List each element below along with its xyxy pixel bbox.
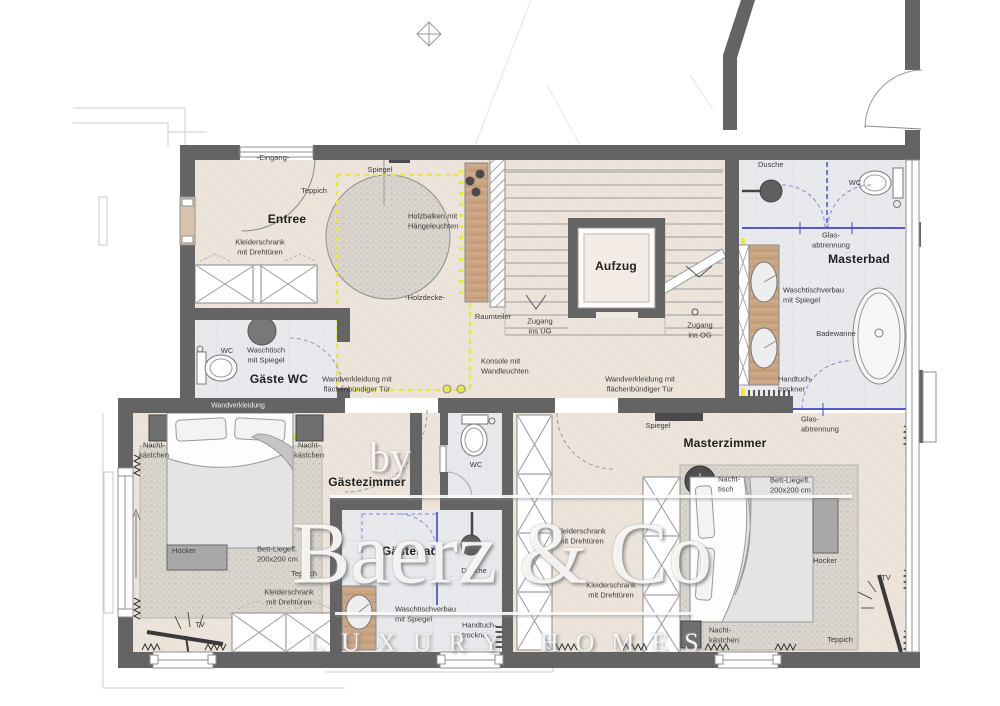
watermark-brand: Baerz & Co bbox=[292, 504, 712, 605]
label-zugang-ug: Zugang ins UG bbox=[527, 316, 552, 336]
label-handtuchtrockner-mb: Handtuch- trockner bbox=[778, 374, 813, 394]
label-wandverkleidung-tuer-right: Wandverkleidung mit flächenbündiger Tür bbox=[605, 374, 675, 394]
label-glas-mb-unten: Glas- abtrennung bbox=[801, 414, 839, 434]
label-wc-center: WC bbox=[470, 460, 483, 470]
watermark-rule-bottom bbox=[335, 612, 692, 615]
label-tv-gz: TV bbox=[195, 620, 205, 630]
room-aufzug: Aufzug bbox=[595, 259, 637, 275]
round-rug bbox=[326, 175, 450, 299]
nightstand bbox=[296, 415, 323, 441]
room-divider bbox=[490, 158, 505, 307]
label-nachtkaestchen-gz-l: Nacht- kästchen bbox=[139, 440, 169, 460]
label-tv-mz: TV bbox=[881, 573, 891, 583]
label-wandverkleidung: Wandverkleidung bbox=[211, 401, 265, 410]
watermark-by: by bbox=[369, 434, 411, 482]
label-hocker-gz: Hocker bbox=[172, 546, 196, 556]
survey-diamond-icon bbox=[417, 22, 441, 46]
label-wandverkleidung-tuer-left: Wandverkleidung mit flächenbündiger Tür bbox=[322, 374, 392, 394]
label-raumteiler: Raumteiler bbox=[475, 312, 511, 322]
label-spiegel-entree: Spiegel bbox=[367, 165, 392, 175]
label-bett-mz: Bett-Liegefl. 200x200 cm bbox=[770, 475, 811, 495]
wall-mirrors bbox=[655, 413, 703, 421]
label-wc-gaeste: WC bbox=[221, 346, 234, 356]
label-teppich-entree: Teppich bbox=[301, 186, 327, 196]
label-zugang-og: Zugang ins OG bbox=[687, 320, 712, 340]
entree-wardrobe bbox=[195, 265, 317, 303]
watermark-rule-top bbox=[330, 495, 852, 498]
exterior-door bbox=[865, 70, 922, 129]
label-badewanne: Badewanne bbox=[816, 329, 856, 339]
master-mirror bbox=[655, 413, 703, 421]
shower-head bbox=[760, 180, 782, 202]
label-hocker-mz: Hocker bbox=[813, 556, 837, 566]
room-gaeste-wc: Gäste WC bbox=[250, 372, 308, 388]
label-holzdecke: -Holzdecke- bbox=[405, 293, 445, 303]
label-nachtkaestchen-gz-r: Nacht- kästchen bbox=[294, 440, 324, 460]
label-glas-mb-oben: Glas- abtrennung bbox=[812, 230, 850, 250]
room-entree: Entree bbox=[268, 212, 307, 228]
room-masterzimmer: Masterzimmer bbox=[683, 436, 766, 452]
label-dusche-mb: Dusche bbox=[758, 160, 783, 170]
stool bbox=[813, 498, 838, 553]
label-teppich-mz: Teppich bbox=[827, 635, 853, 645]
pillow bbox=[176, 418, 227, 442]
label-nachttisch: Nacht- tisch bbox=[718, 474, 740, 494]
label-holzbalken: Holzbalken mit Hängeleuchten bbox=[408, 211, 458, 231]
label-waschtischverbau-mb: Waschtischverbau mit Spiegel bbox=[783, 285, 844, 305]
label-waschtisch: Waschtisch mit Spiegel bbox=[247, 345, 285, 365]
label-eingang: -Eingang- bbox=[257, 153, 290, 163]
watermark-tagline: LUXURY HOMES bbox=[308, 628, 715, 658]
wall-light bbox=[443, 385, 451, 393]
floor-plan: -Eingang- Spiegel Teppich Entree Kleider… bbox=[0, 0, 1000, 706]
door-leaf bbox=[440, 446, 446, 473]
label-konsole: Konsole mit Wandleuchten bbox=[481, 356, 529, 376]
label-spiegel-mz: Spiegel bbox=[645, 421, 670, 431]
room-masterbad: Masterbad bbox=[828, 252, 890, 268]
label-kleiderschrank-entree: Kleiderschrank mit Drehtüren bbox=[235, 237, 285, 257]
wall-light bbox=[457, 385, 465, 393]
washbasin bbox=[248, 317, 276, 345]
label-wc-mb: WC bbox=[849, 178, 862, 188]
